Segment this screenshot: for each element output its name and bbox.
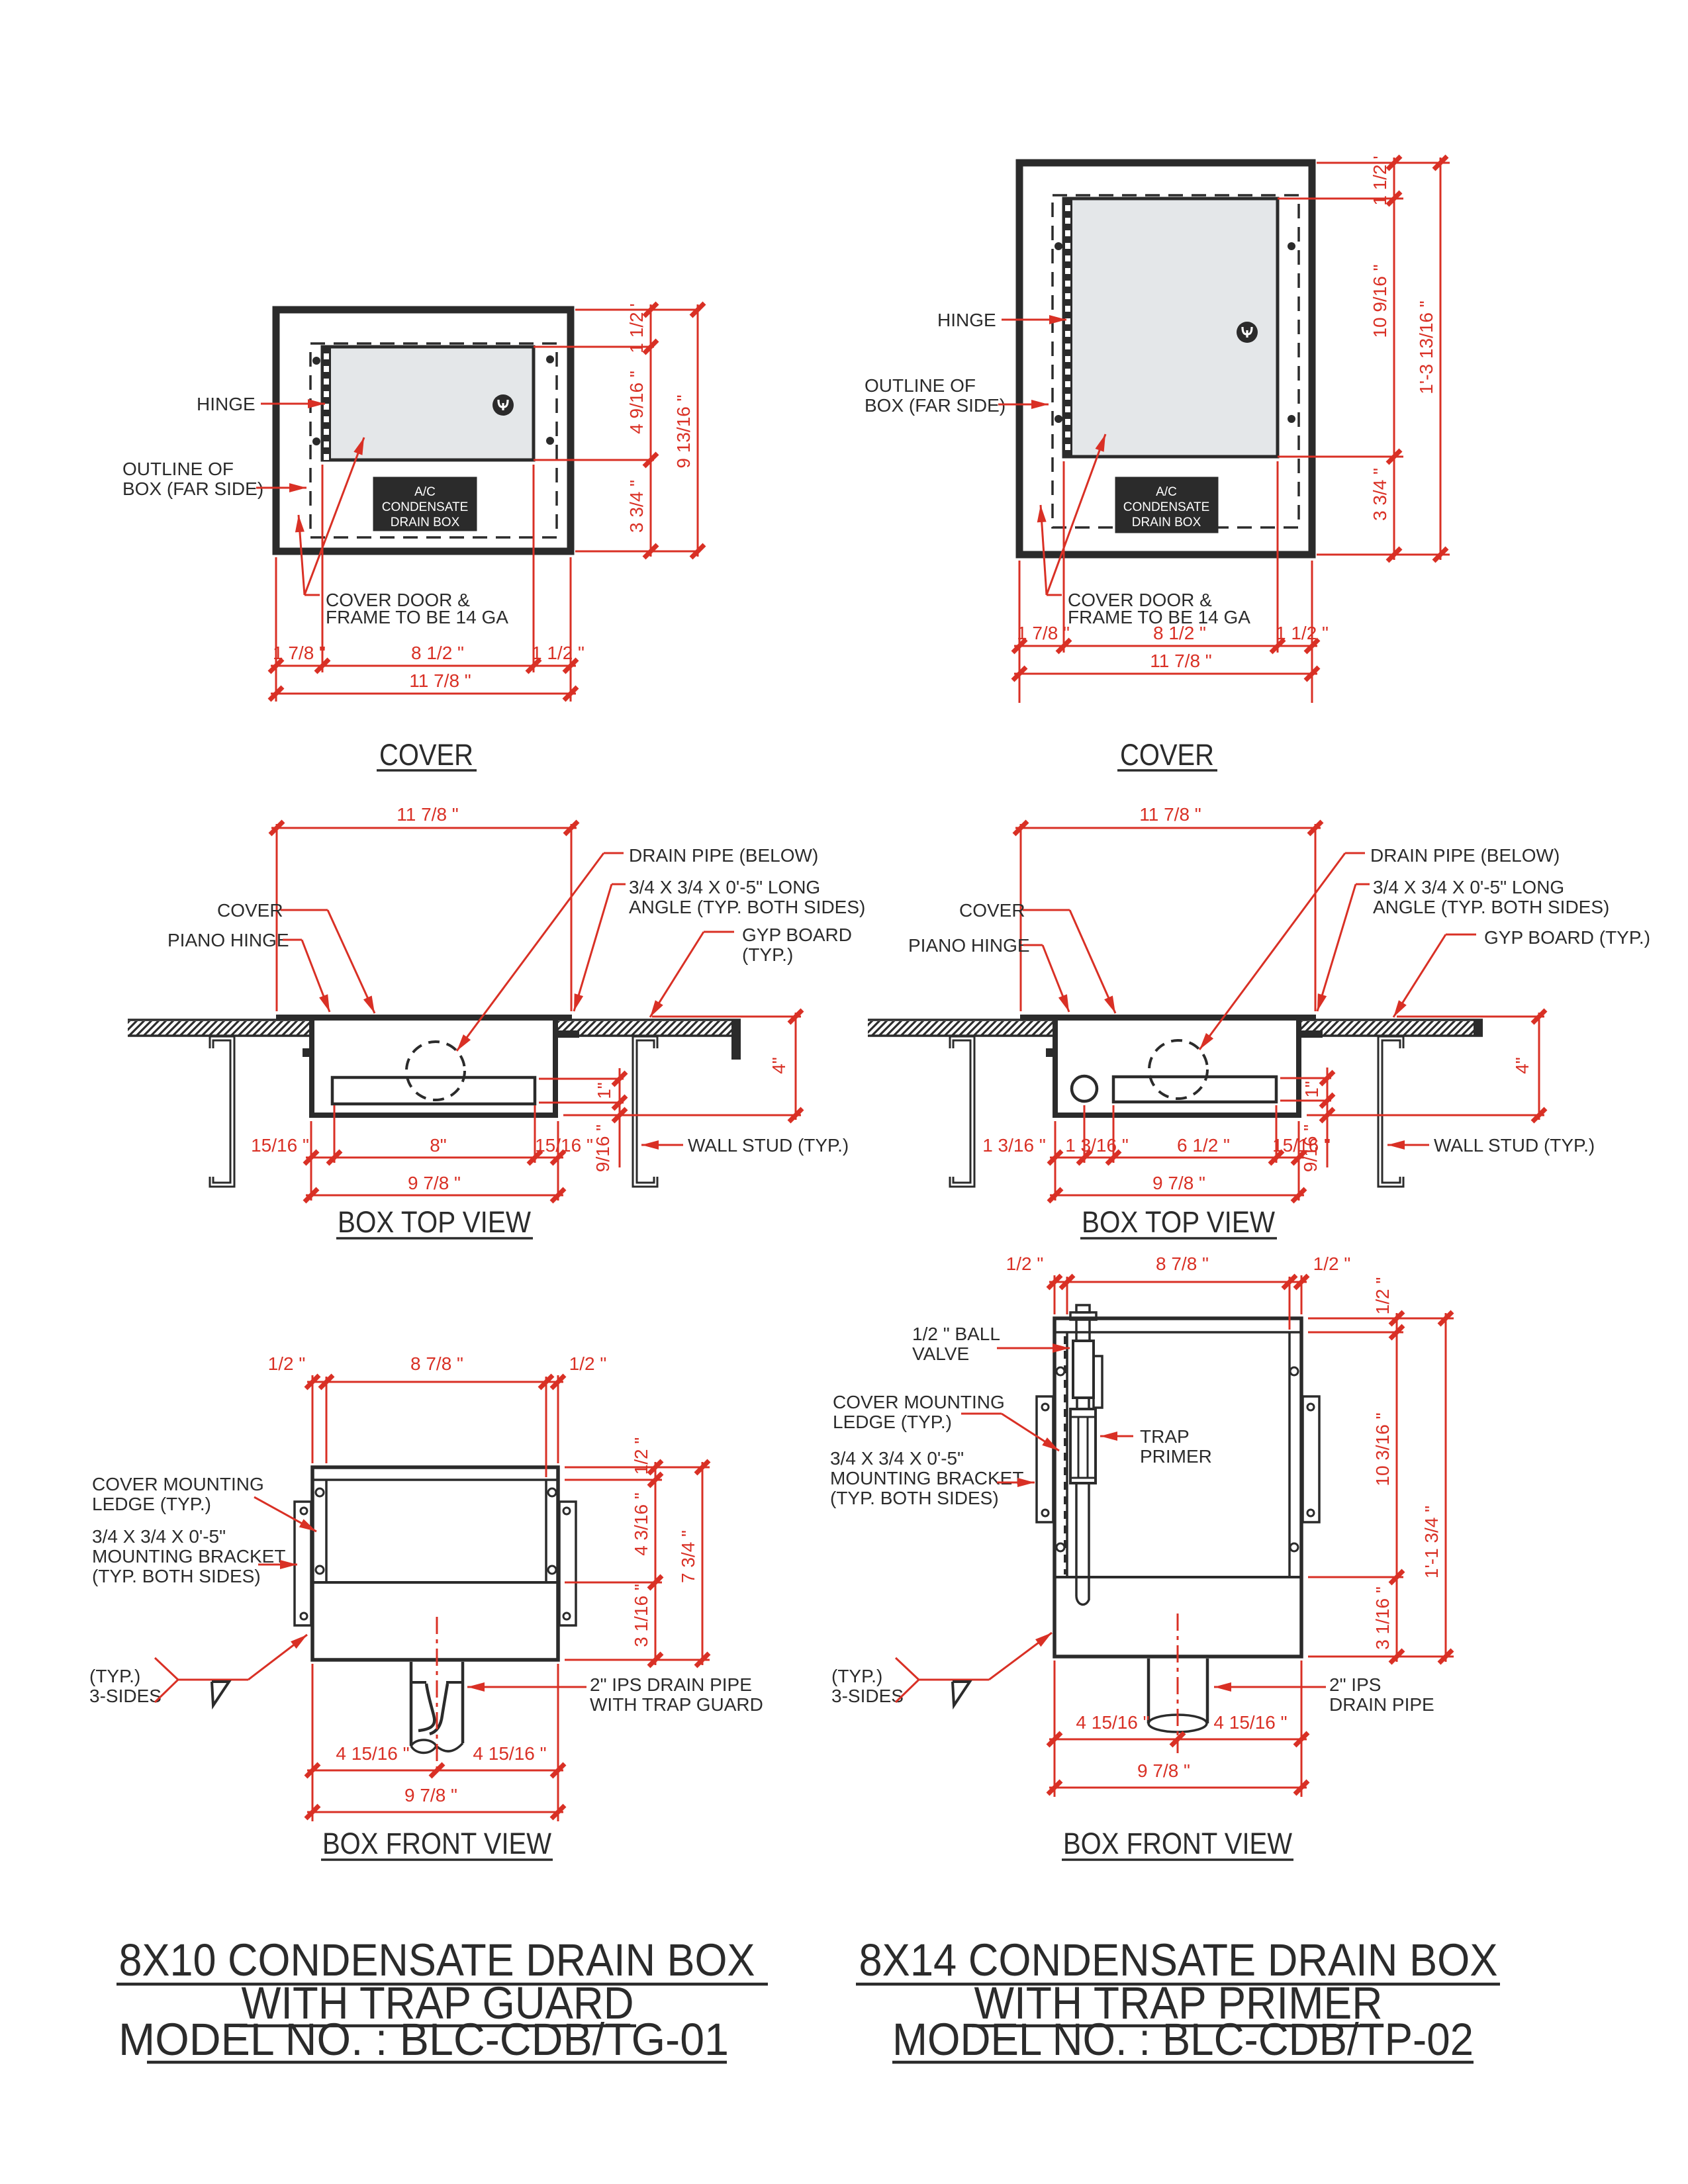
svg-text:DRAIN BOX: DRAIN BOX: [1132, 516, 1201, 529]
svg-text:(TYP. BOTH SIDES): (TYP. BOTH SIDES): [830, 1488, 999, 1508]
svg-text:WALL STUD (TYP.): WALL STUD (TYP.): [1434, 1135, 1595, 1156]
svg-text:VALVE: VALVE: [912, 1343, 969, 1364]
svg-text:3/4 X 3/4 X 0'-5" LONG: 3/4 X 3/4 X 0'-5" LONG: [629, 877, 820, 897]
svg-text:1 3/16 ": 1 3/16 ": [1065, 1135, 1129, 1156]
svg-text:MOUNTING BRACKET: MOUNTING BRACKET: [92, 1546, 285, 1567]
svg-text:4 15/16 ": 4 15/16 ": [1076, 1712, 1149, 1733]
svg-text:1 1/2 ": 1 1/2 ": [532, 643, 585, 663]
svg-text:CONDENSATE: CONDENSATE: [1123, 500, 1210, 514]
svg-text:9 7/8 ": 9 7/8 ": [1152, 1173, 1205, 1193]
svg-text:1": 1": [594, 1082, 614, 1099]
svg-text:BOX FRONT VIEW: BOX FRONT VIEW: [1063, 1827, 1292, 1860]
svg-text:OUTLINE OF: OUTLINE OF: [865, 375, 976, 396]
svg-text:9 7/8 ": 9 7/8 ": [404, 1785, 457, 1805]
svg-text:4 15/16 ": 4 15/16 ": [473, 1743, 546, 1764]
svg-text:CONDENSATE: CONDENSATE: [382, 500, 469, 514]
svg-text:3/4 X 3/4 X 0'-5": 3/4 X 3/4 X 0'-5": [830, 1448, 964, 1469]
svg-text:WITH TRAP GUARD: WITH TRAP GUARD: [590, 1694, 763, 1715]
svg-text:COVER: COVER: [959, 900, 1025, 921]
svg-text:DRAIN BOX: DRAIN BOX: [391, 516, 460, 529]
svg-text:8 7/8 ": 8 7/8 ": [410, 1353, 463, 1374]
svg-text:11 7/8 ": 11 7/8 ": [409, 670, 471, 691]
svg-text:COVER: COVER: [217, 900, 283, 921]
svg-text:15/16 ": 15/16 ": [535, 1135, 593, 1156]
svg-text:DRAIN PIPE: DRAIN PIPE: [1329, 1694, 1434, 1715]
svg-text:4": 4": [769, 1057, 789, 1074]
svg-text:4 3/16 ": 4 3/16 ": [631, 1492, 651, 1556]
svg-text:BOX TOP VIEW: BOX TOP VIEW: [338, 1205, 531, 1239]
svg-text:1 7/8 ": 1 7/8 ": [1017, 623, 1070, 643]
svg-text:COVER: COVER: [1120, 738, 1214, 772]
svg-text:9 13/16 ": 9 13/16 ": [673, 394, 694, 468]
svg-text:2" IPS: 2" IPS: [1329, 1674, 1381, 1695]
svg-text:A/C: A/C: [414, 485, 436, 499]
svg-text:8": 8": [430, 1135, 447, 1156]
svg-text:1 7/8 ": 1 7/8 ": [273, 643, 326, 663]
svg-text:DRAIN PIPE (BELOW): DRAIN PIPE (BELOW): [1370, 845, 1560, 866]
svg-text:10 9/16 ": 10 9/16 ": [1370, 264, 1390, 338]
svg-text:9 7/8 ": 9 7/8 ": [1137, 1760, 1190, 1781]
svg-text:1/2 ": 1/2 ": [631, 1437, 651, 1475]
svg-text:1/2 ": 1/2 ": [1006, 1253, 1044, 1274]
svg-text:11 7/8 ": 11 7/8 ": [1150, 651, 1212, 671]
svg-text:(TYP.): (TYP.): [89, 1666, 140, 1686]
svg-text:MOUNTING BRACKET: MOUNTING BRACKET: [830, 1468, 1023, 1488]
svg-text:(TYP.): (TYP.): [831, 1666, 882, 1686]
svg-text:3/4 X 3/4 X 0'-5": 3/4 X 3/4 X 0'-5": [92, 1526, 226, 1547]
svg-text:(TYP.): (TYP.): [742, 944, 793, 965]
svg-text:3/4 X 3/4 X 0'-5" LONG: 3/4 X 3/4 X 0'-5" LONG: [1373, 877, 1564, 897]
svg-text:2" IPS DRAIN PIPE: 2" IPS DRAIN PIPE: [590, 1674, 752, 1695]
svg-text:1'-3 13/16 ": 1'-3 13/16 ": [1416, 300, 1436, 394]
svg-text:8 7/8 ": 8 7/8 ": [1156, 1253, 1209, 1274]
svg-text:HINGE: HINGE: [197, 394, 256, 414]
svg-text:9/16 ": 9/16 ": [592, 1124, 613, 1172]
svg-text:6 1/2 ": 6 1/2 ": [1177, 1135, 1230, 1156]
svg-text:3-SIDES: 3-SIDES: [89, 1686, 162, 1706]
svg-text:COVER: COVER: [379, 738, 473, 772]
svg-text:FRAME TO BE 14 GA: FRAME TO BE 14 GA: [326, 607, 508, 627]
svg-text:3 1/16 ": 3 1/16 ": [631, 1584, 651, 1647]
svg-text:PIANO HINGE: PIANO HINGE: [908, 935, 1030, 956]
svg-text:1 1/2 ': 1 1/2 ': [626, 303, 647, 353]
svg-text:LEDGE (TYP.): LEDGE (TYP.): [833, 1412, 952, 1432]
svg-text:ANGLE (TYP. BOTH SIDES): ANGLE (TYP. BOTH SIDES): [1373, 897, 1609, 917]
svg-text:BOX (FAR SIDE): BOX (FAR SIDE): [865, 395, 1006, 416]
svg-text:10 3/16 ": 10 3/16 ": [1372, 1412, 1393, 1486]
svg-text:8 1/2 ": 8 1/2 ": [411, 643, 464, 663]
svg-text:15/16 ": 15/16 ": [251, 1135, 309, 1156]
svg-text:3-SIDES: 3-SIDES: [831, 1686, 904, 1706]
svg-text:DRAIN PIPE (BELOW): DRAIN PIPE (BELOW): [629, 845, 818, 866]
svg-text:4 15/16 ": 4 15/16 ": [336, 1743, 409, 1764]
svg-text:1/2 ": 1/2 ": [569, 1353, 607, 1374]
svg-text:1/2 ": 1/2 ": [268, 1353, 306, 1374]
svg-text:BOX TOP VIEW: BOX TOP VIEW: [1082, 1205, 1275, 1239]
svg-text:PRIMER: PRIMER: [1140, 1446, 1212, 1467]
svg-text:HINGE: HINGE: [937, 310, 996, 330]
svg-text:3 3/4 ": 3 3/4 ": [1370, 468, 1390, 521]
svg-text:TRAP: TRAP: [1140, 1426, 1190, 1447]
svg-text:MODEL NO. : BLC-CDB/TP-02: MODEL NO. : BLC-CDB/TP-02: [892, 2014, 1474, 2065]
svg-text:11 7/8 ": 11 7/8 ": [397, 804, 459, 825]
svg-text:9 7/8 ": 9 7/8 ": [408, 1173, 461, 1193]
svg-text:BOX FRONT VIEW: BOX FRONT VIEW: [322, 1827, 551, 1860]
svg-text:OUTLINE OF: OUTLINE OF: [122, 459, 234, 479]
svg-text:1 1/2 ': 1 1/2 ': [1370, 156, 1390, 205]
svg-text:BOX (FAR SIDE): BOX (FAR SIDE): [122, 478, 263, 499]
svg-text:ANGLE (TYP. BOTH SIDES): ANGLE (TYP. BOTH SIDES): [629, 897, 865, 917]
svg-text:PIANO HINGE: PIANO HINGE: [167, 930, 289, 950]
svg-text:3 3/4 ": 3 3/4 ": [626, 480, 647, 533]
svg-text:1": 1": [1301, 1081, 1322, 1098]
svg-text:COVER MOUNTING: COVER MOUNTING: [833, 1392, 1005, 1412]
svg-text:4 9/16 ": 4 9/16 ": [626, 371, 647, 434]
svg-text:COVER MOUNTING: COVER MOUNTING: [92, 1474, 264, 1494]
svg-text:A/C: A/C: [1156, 485, 1177, 499]
svg-text:1 1/2 ": 1 1/2 ": [1276, 623, 1329, 643]
svg-text:1'-1 3/4 ": 1'-1 3/4 ": [1421, 1506, 1442, 1578]
svg-text:1 3/16 ": 1 3/16 ": [982, 1135, 1046, 1156]
svg-text:11 7/8 ": 11 7/8 ": [1139, 804, 1201, 825]
svg-text:1/2 " BALL: 1/2 " BALL: [912, 1324, 1000, 1344]
svg-text:GYP BOARD (TYP.): GYP BOARD (TYP.): [1484, 927, 1650, 948]
svg-text:8 1/2 ": 8 1/2 ": [1153, 623, 1206, 643]
svg-text:4": 4": [1512, 1057, 1532, 1074]
svg-text:3 1/16 ": 3 1/16 ": [1372, 1586, 1393, 1650]
svg-text:GYP BOARD: GYP BOARD: [742, 925, 852, 945]
svg-text:7 3/4 ": 7 3/4 ": [678, 1530, 698, 1583]
svg-text:MODEL NO. : BLC-CDB/TG-01: MODEL NO. : BLC-CDB/TG-01: [118, 2014, 729, 2065]
svg-text:1/2 ": 1/2 ": [1372, 1277, 1393, 1315]
svg-text:LEDGE (TYP.): LEDGE (TYP.): [92, 1494, 211, 1514]
svg-text:4 15/16 ": 4 15/16 ": [1213, 1712, 1287, 1733]
svg-text:9/16 ": 9/16 ": [1300, 1124, 1321, 1172]
svg-text:WALL STUD (TYP.): WALL STUD (TYP.): [688, 1135, 849, 1156]
svg-text:(TYP. BOTH SIDES): (TYP. BOTH SIDES): [92, 1566, 261, 1586]
svg-text:1/2 ": 1/2 ": [1313, 1253, 1351, 1274]
